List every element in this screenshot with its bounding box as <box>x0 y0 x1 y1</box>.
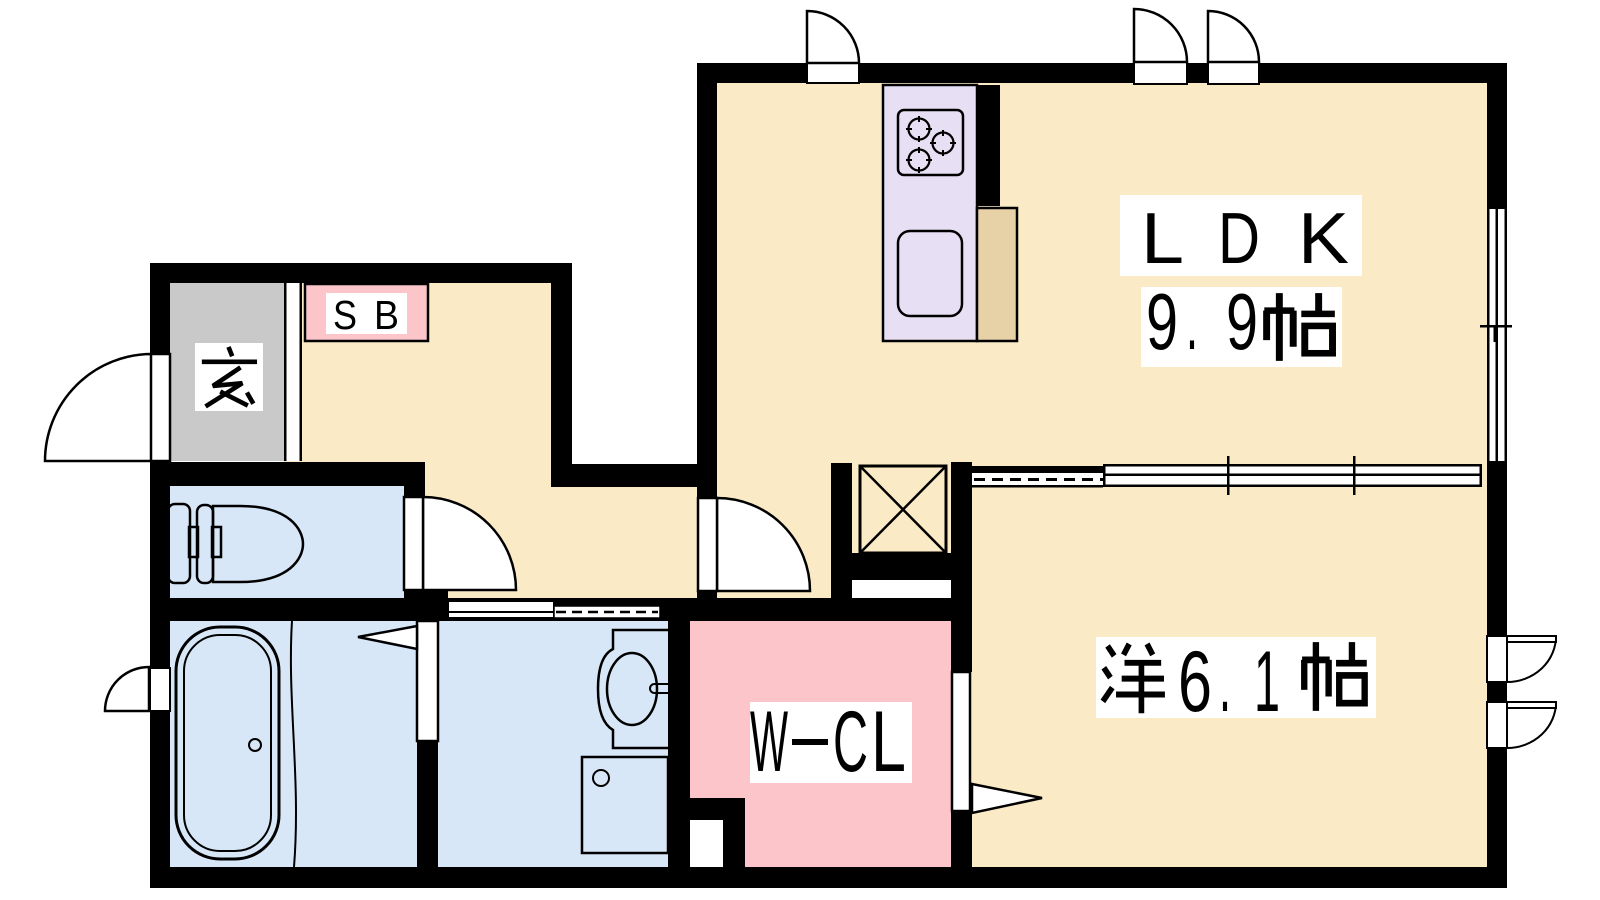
svg-text:L: L <box>1141 199 1184 279</box>
svg-text:L: L <box>871 694 906 790</box>
svg-text:.: . <box>1219 634 1231 730</box>
svg-text:9: 9 <box>1146 277 1178 366</box>
svg-text:D: D <box>1218 199 1260 279</box>
svg-text:K: K <box>1298 199 1349 279</box>
svg-text:6: 6 <box>1178 634 1212 730</box>
svg-text:9: 9 <box>1226 277 1258 366</box>
svg-text:B: B <box>374 292 399 338</box>
svg-text:S: S <box>333 292 357 338</box>
svg-text:1: 1 <box>1254 634 1280 730</box>
svg-text:C: C <box>833 694 868 790</box>
svg-text:.: . <box>1186 277 1198 366</box>
svg-text:W: W <box>750 694 788 790</box>
